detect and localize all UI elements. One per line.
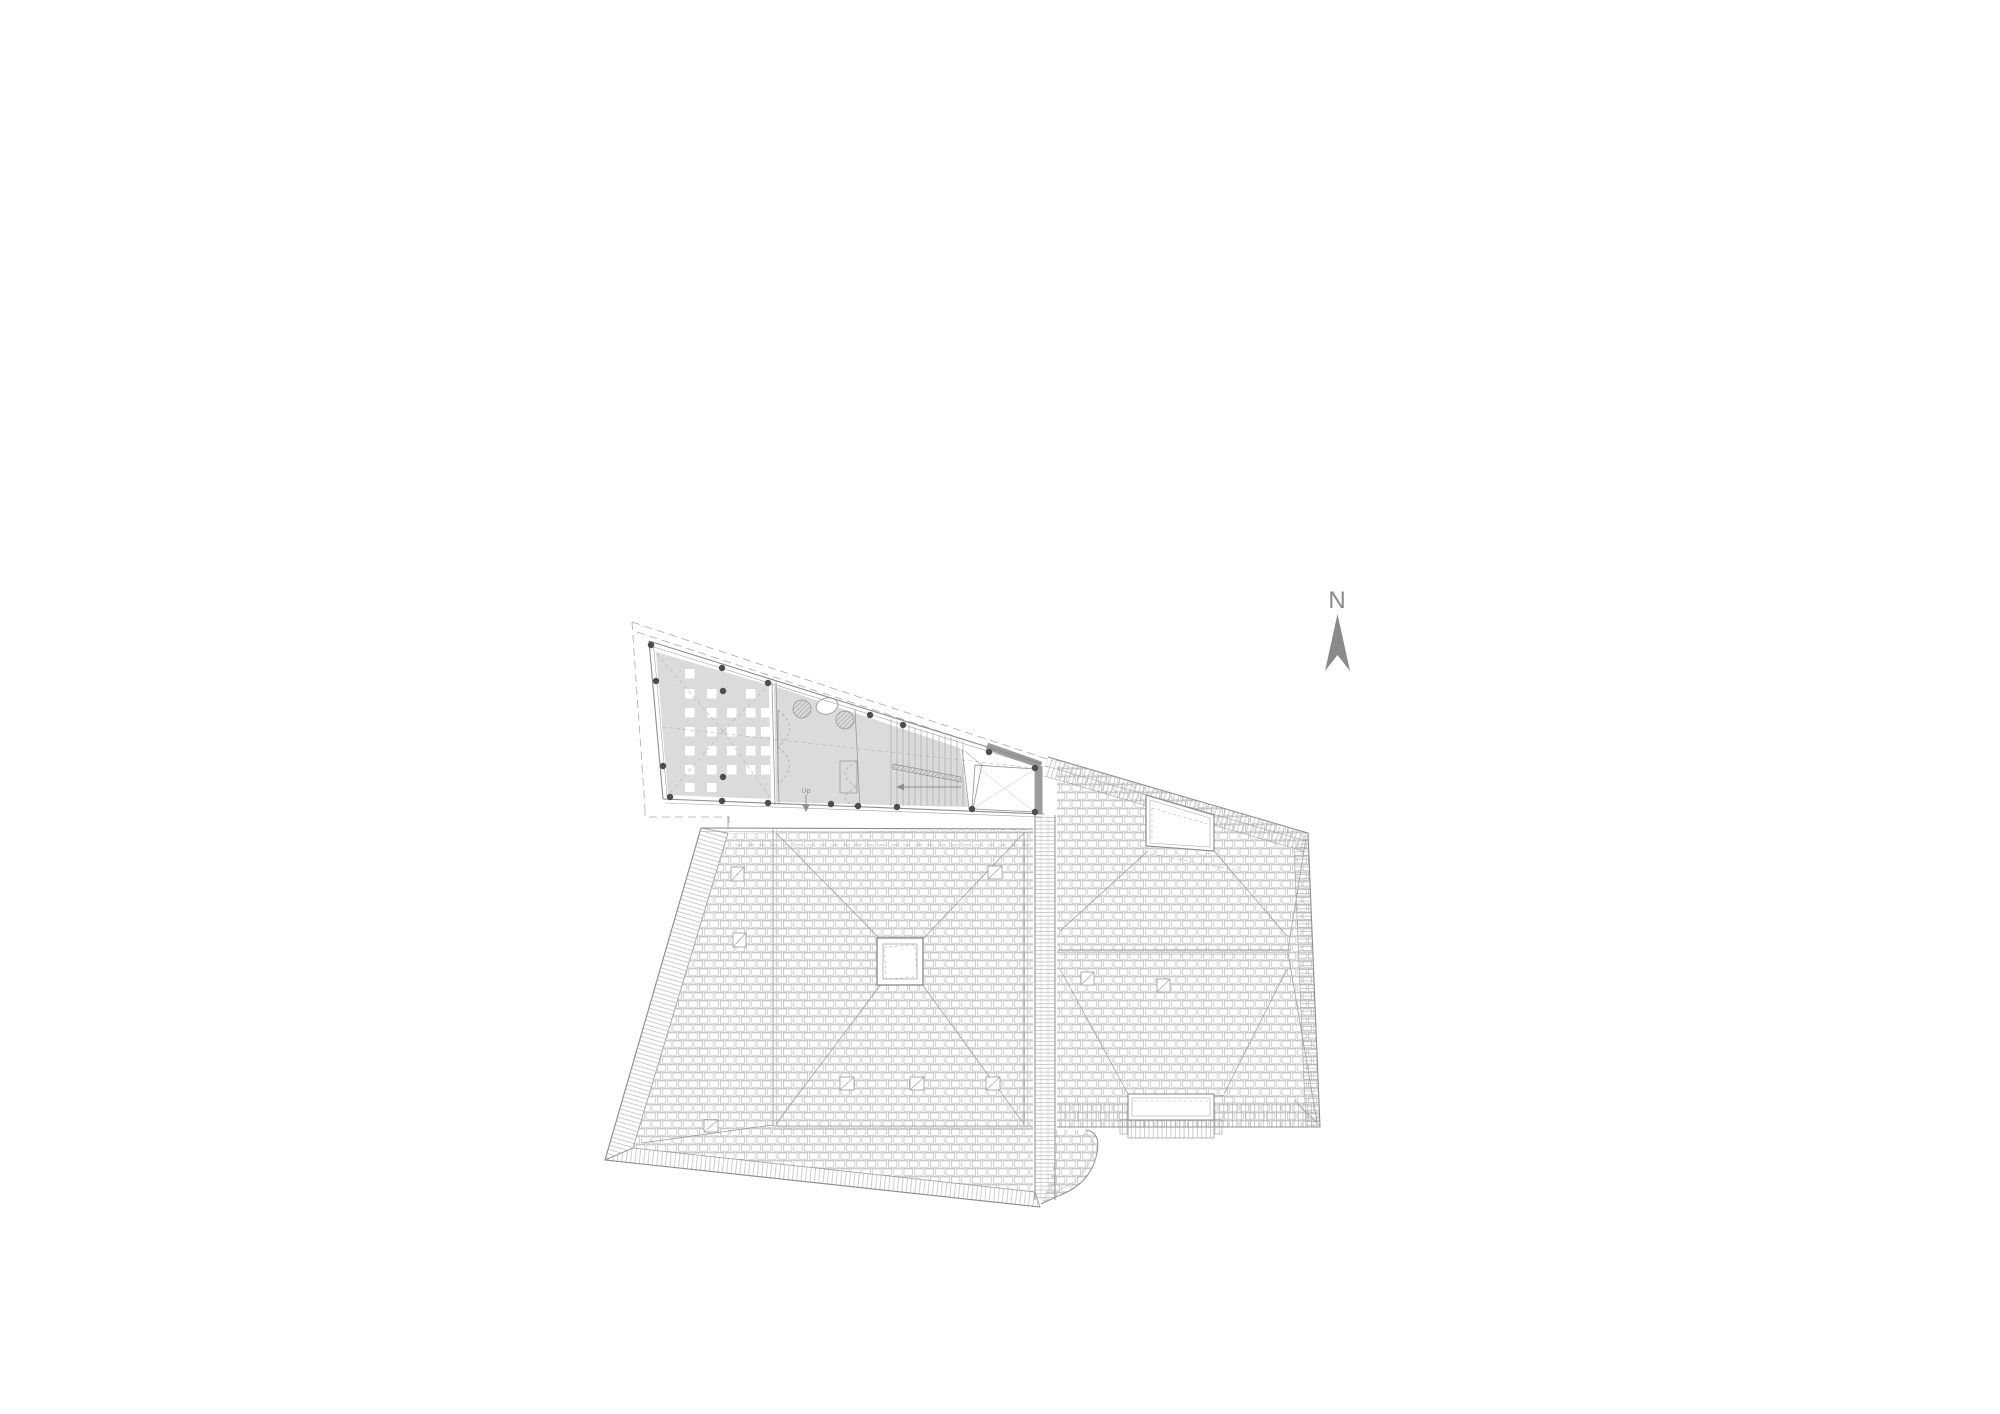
stair-up-label: Up [802,788,811,795]
central-skylight [877,938,923,985]
north-label: N [1328,587,1345,614]
roof-plan-drawing: Up N [0,0,2000,1414]
junction-gutter [1035,815,1055,1200]
north-indicator: N [1325,587,1350,671]
north-arrow-icon [1325,614,1350,671]
right-roof [1044,757,1320,1138]
vestibule-room [972,765,1035,812]
wedge-building: Up [632,622,1053,829]
right-roof-bottom-dormer [1120,1094,1222,1138]
page: Up N [0,0,2000,1414]
left-roof [605,828,1098,1207]
